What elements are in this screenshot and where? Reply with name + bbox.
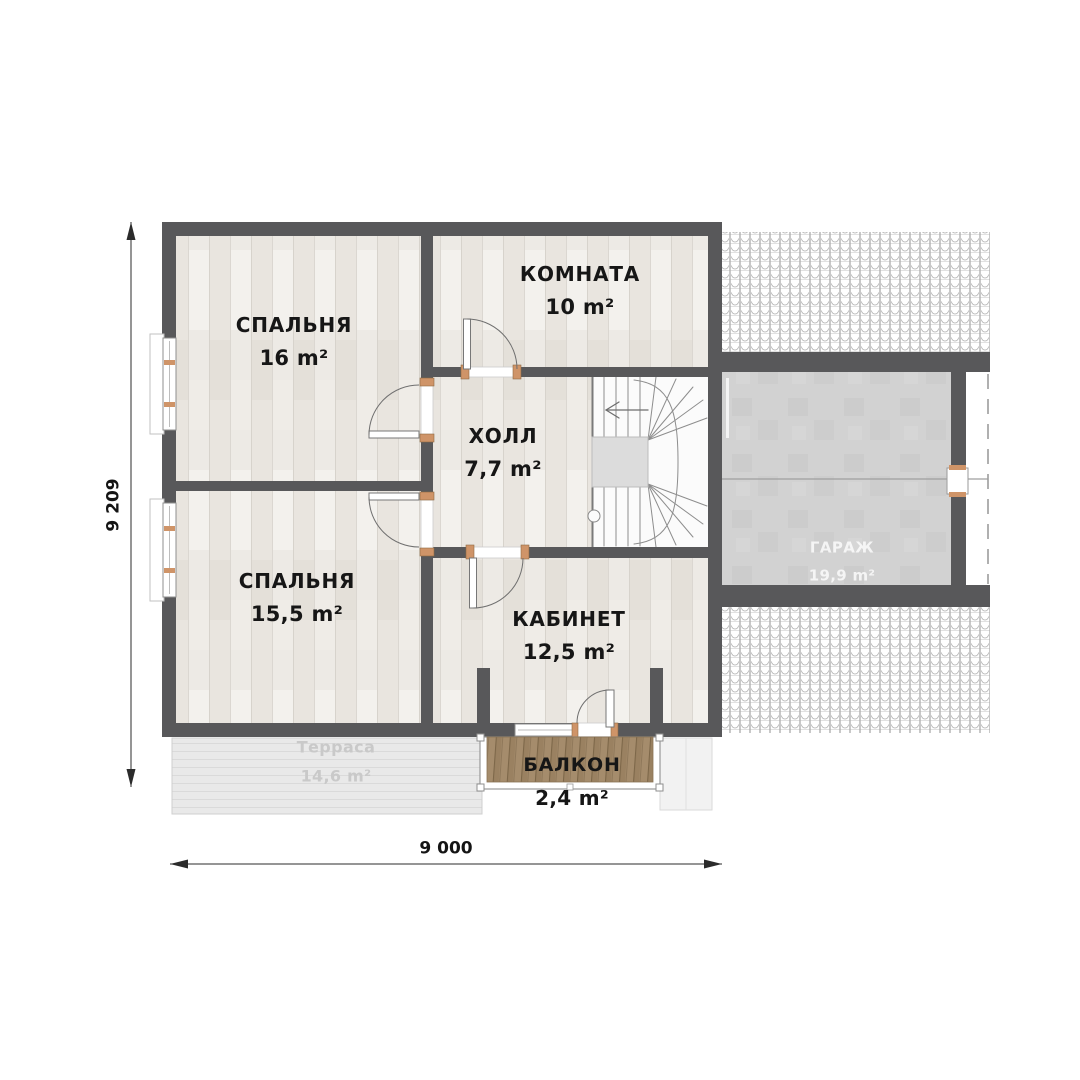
room-area: 15,5 m² (239, 604, 356, 625)
dimension-horizontal (170, 860, 722, 869)
room-name: КОМНАТА (520, 264, 640, 284)
dimension-vertical (127, 222, 136, 787)
room-area: 16 m² (236, 348, 353, 369)
room-label-terrace: Терраса 14,6 m² (297, 740, 376, 785)
room-label-study: КАБИНЕТ 12,5 m² (512, 609, 625, 663)
room-name: Терраса (297, 740, 376, 756)
garage-window (947, 465, 968, 497)
room-name: СПАЛЬНЯ (236, 315, 353, 335)
room-label-garage: ГАРАЖ 19,9 m² (809, 541, 876, 584)
room-name: ГАРАЖ (809, 541, 876, 556)
room-name: КАБИНЕТ (512, 609, 625, 629)
room-name: ХОЛЛ (464, 426, 541, 446)
room-area: 19,9 m² (809, 569, 876, 584)
room-name: БАЛКОН (523, 756, 620, 775)
room-label-room: КОМНАТА 10 m² (520, 264, 640, 318)
room-label-bedroom-top: СПАЛЬНЯ 16 m² (236, 315, 353, 369)
roof-hatch-bottom (722, 607, 990, 733)
staircase (588, 375, 708, 548)
dimension-value-vertical: 9 209 (106, 478, 123, 531)
stair-void (592, 437, 648, 487)
room-label-bedroom-bottom: СПАЛЬНЯ 15,5 m² (239, 571, 356, 625)
stair-pole (588, 510, 600, 522)
room-area: 14,6 m² (297, 769, 376, 785)
balcony-window (515, 724, 577, 736)
room-area: 10 m² (520, 297, 640, 318)
room-area: 7,7 m² (464, 459, 541, 480)
room-label-balcony: БАЛКОН 2,4 m² (523, 756, 620, 808)
window-bedroom-bottom (150, 499, 176, 601)
room-area: 2,4 m² (523, 788, 620, 808)
floor-plan-drawing (0, 0, 1080, 1080)
dimension-value-horizontal: 9 000 (419, 841, 472, 858)
room-label-hall: ХОЛЛ 7,7 m² (464, 426, 541, 480)
room-area: 12,5 m² (512, 642, 625, 663)
floor-plan-canvas: СПАЛЬНЯ 16 m² КОМНАТА 10 m² ХОЛЛ 7,7 m² … (0, 0, 1080, 1080)
room-name: СПАЛЬНЯ (239, 571, 356, 591)
roof-hatch-top (722, 232, 990, 352)
window-bedroom-top (150, 334, 176, 434)
